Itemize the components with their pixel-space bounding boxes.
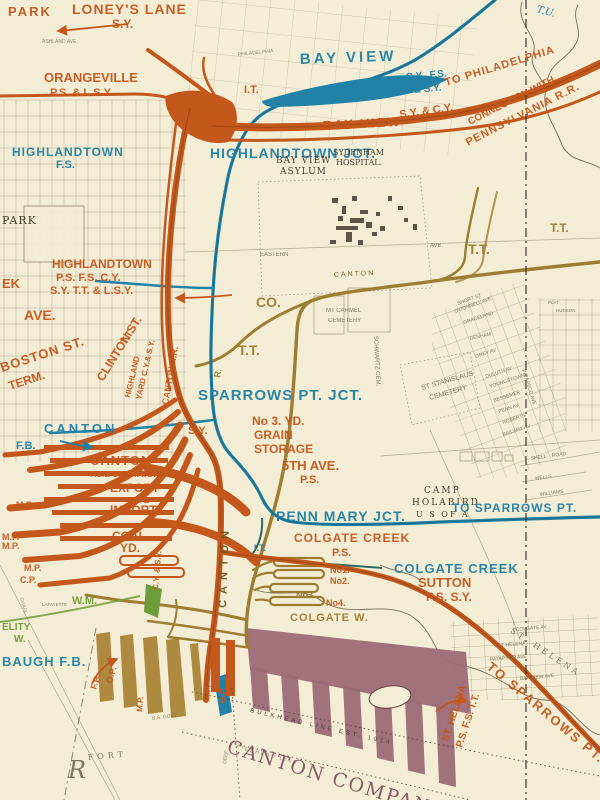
map-label: AVE. (430, 243, 444, 249)
map-label: 5TH AVE. (282, 458, 339, 473)
map-label: EASTERN (260, 252, 288, 258)
map-label: W.M. (72, 595, 97, 607)
map-label: BAUGH F.B. (2, 654, 86, 669)
map-label: CANTON (90, 453, 151, 468)
map-label: SUTTON (418, 575, 471, 590)
map-label: GRAIN (254, 428, 293, 442)
map-label: P.S. S.Y. (426, 590, 472, 604)
map-label: EK (2, 276, 21, 291)
map-label: TO SPARROWS PT. (452, 501, 577, 515)
map-label: COLGATE W. (290, 612, 369, 624)
map-label: STORAGE (254, 442, 313, 456)
map-label: COLGATE CREEK (394, 561, 519, 576)
map-label: M.P. (16, 500, 33, 510)
map-label: YD. (120, 541, 140, 555)
map-label: IMPORT (110, 503, 157, 517)
map-label: CO. (256, 294, 281, 310)
map-label: LONEY'S LANE (72, 1, 187, 17)
map-label: LAFAYETTE (42, 602, 67, 607)
map-label: W. (14, 634, 26, 645)
map-label: M.P. (135, 696, 145, 712)
map-canvas: PARKLONEY'S LANES.Y.T.U.ASHLAND AVE.PHIL… (0, 0, 600, 800)
map-label: M.P. (2, 541, 19, 551)
map-label: HOSPITAL. (336, 158, 382, 167)
map-label: HIGHLANDTOWN (52, 257, 152, 271)
map-label: CEMETERY (328, 318, 361, 324)
map-label: PENN MARY JCT. (276, 508, 406, 524)
map-label: T.T. (468, 241, 490, 257)
map-label: S.Y. T.T. & L.S.Y. (50, 285, 133, 297)
map-label: HIGHLANDTOWN (12, 145, 124, 159)
map-label: G.P. (217, 687, 228, 705)
map-label: F.S. (56, 159, 75, 171)
map-label: PLAT (548, 300, 559, 305)
map-label: No3. (296, 590, 316, 600)
map-label: AVE. (24, 307, 56, 323)
map-label: ASHLAND AVE. (42, 39, 78, 45)
map-label: No4. (326, 598, 346, 608)
map-label: No2. (330, 576, 350, 586)
map-label: BAY VIEW (276, 156, 331, 166)
map-label: PARK (2, 214, 37, 227)
map-label: P.S. (300, 474, 319, 486)
map-label: HUDSON (556, 308, 576, 313)
map-label: EXPORT (110, 481, 160, 495)
map-label: P.S. & L.S.Y. (50, 87, 113, 99)
map-label: BAY VIEW (300, 48, 397, 68)
map-label: T.T. (238, 342, 260, 358)
map-label: ELITY (2, 622, 31, 633)
map-label: R (67, 756, 86, 784)
map-label: COLGATE CREEK (294, 531, 410, 545)
map-label: I.T. (254, 543, 266, 553)
map-label: C.P. (20, 575, 36, 585)
map-label: SYDENHAM (333, 148, 384, 157)
map-label: CAMP (424, 486, 461, 496)
map-label: PARK (8, 4, 52, 19)
gp-pier-1 (211, 638, 220, 692)
map-label: I.T. (244, 84, 259, 96)
map-label: T.T. (550, 221, 569, 235)
map-label: ASYLUM (279, 167, 327, 177)
map-label: SPARROWS PT. JCT. (198, 387, 363, 404)
map-label: R. (212, 368, 223, 379)
railroad-terminal-map: PARKLONEY'S LANES.Y.T.U.ASHLAND AVE.PHIL… (0, 0, 600, 800)
map-label: P.S.& C.Y. (90, 470, 127, 479)
map-label: No1. (330, 565, 350, 575)
map-label: M.P. (24, 563, 41, 573)
map-label: P.S. (332, 547, 351, 559)
map-label: S.Y. (112, 17, 133, 31)
map-label: G.R.S. (126, 469, 156, 480)
map-label: S.Y. (188, 425, 208, 437)
map-label: F.B. (16, 440, 36, 452)
map-label: ORANGEVILLE (44, 70, 138, 85)
map-label: CANTON (44, 421, 117, 436)
map-label: MT CARMEL (326, 308, 362, 314)
map-label: P.S. F.S. C.Y. (56, 272, 121, 284)
map-label: G.P. (201, 685, 212, 703)
map-label: No 3. YD. (252, 414, 304, 428)
